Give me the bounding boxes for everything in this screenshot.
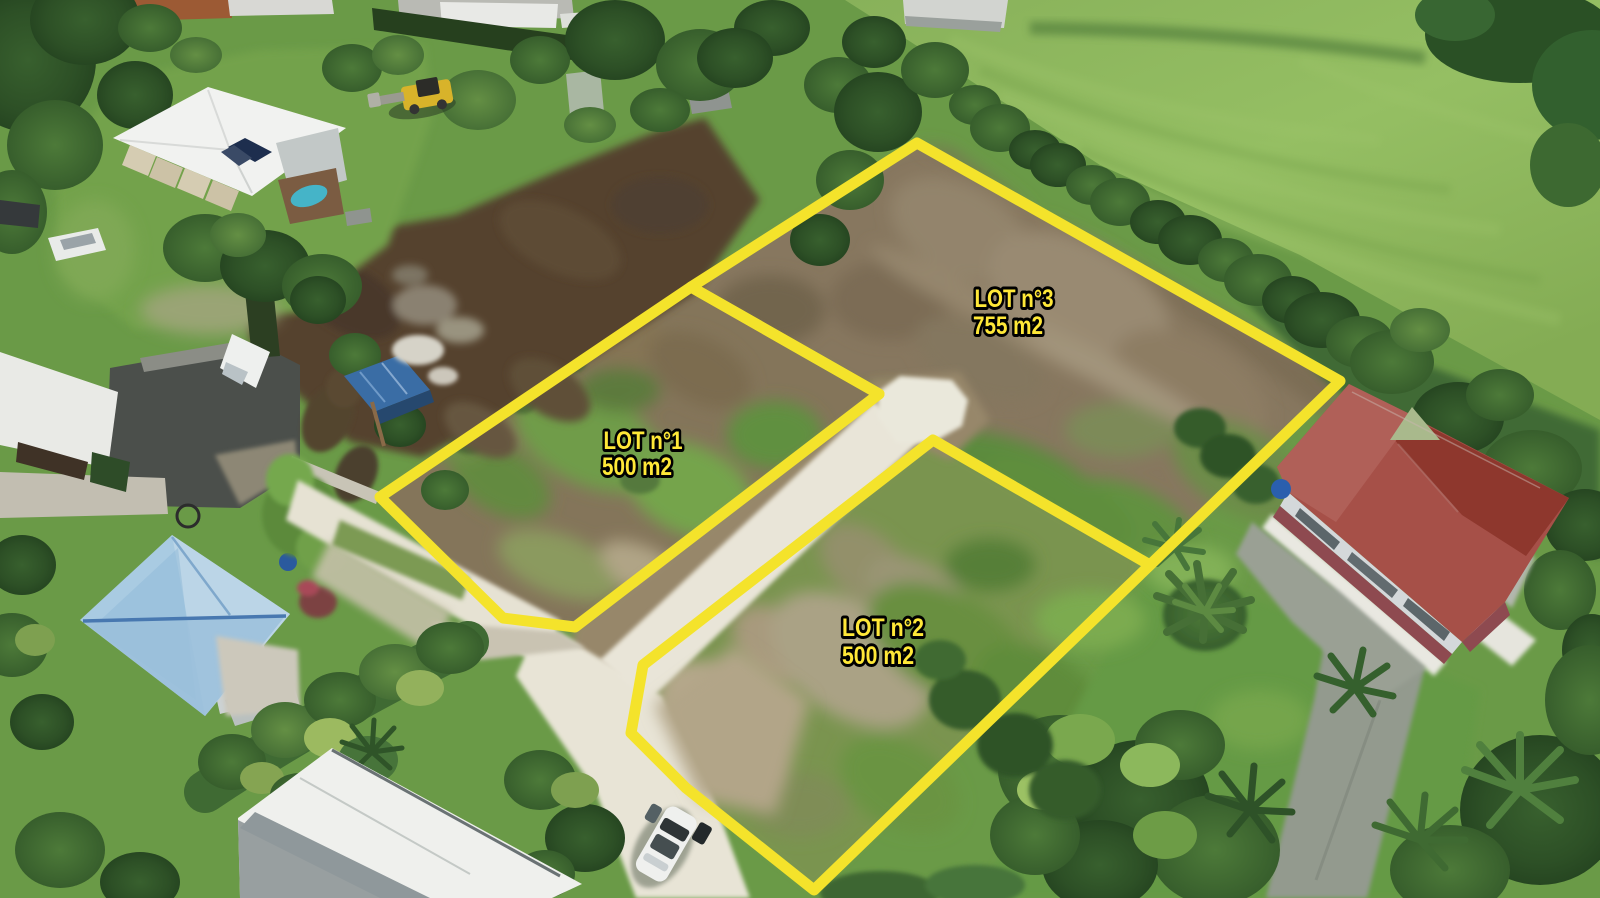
svg-text:LOT n°1: LOT n°1 bbox=[604, 427, 683, 455]
svg-text:LOT n°3: LOT n°3 bbox=[975, 285, 1054, 313]
svg-text:755 m2: 755 m2 bbox=[973, 312, 1043, 340]
svg-text:LOT n°2: LOT n°2 bbox=[842, 614, 924, 642]
svg-text:500 m2: 500 m2 bbox=[602, 453, 672, 481]
svg-text:500 m2: 500 m2 bbox=[842, 642, 914, 670]
